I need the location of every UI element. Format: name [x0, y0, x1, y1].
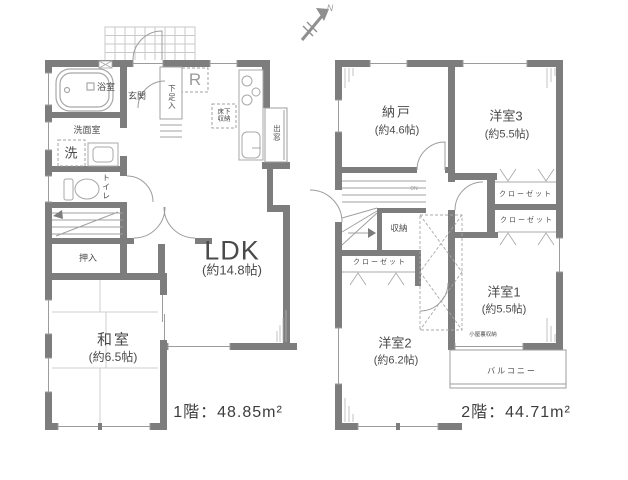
room-label-toilet: トイレ: [101, 174, 110, 201]
closet-label-yoshitsu1: クローゼット: [500, 217, 554, 225]
compass-north-label: N: [327, 3, 334, 13]
stairs-floor1: [52, 210, 123, 236]
closet-label-yoshitsu2: クローゼット: [353, 259, 407, 267]
room-label-storage: 収納: [390, 224, 407, 234]
room-label-shoe-cabinet: 下足入: [167, 84, 176, 110]
room-label-yoshitsu1: 洋室1: [487, 286, 520, 301]
room-label-refrigerator: R: [189, 70, 201, 90]
room-size-nando: (約4.6帖): [375, 125, 420, 138]
room-label-yoshitsu2: 洋室2: [378, 337, 411, 352]
closet-label-yoshitsu3: クローゼット: [499, 191, 553, 199]
room-label-nando: 納戸: [382, 106, 412, 121]
porch-grid: [105, 27, 195, 61]
floor1-area-label: 1階：48.85m²: [173, 404, 283, 422]
compass-icon: [302, 8, 329, 40]
vanity-sink: [88, 143, 118, 166]
room-label-bay-window: 出窓: [272, 125, 281, 142]
room-label-floor-storage: 床下 収納: [218, 109, 231, 124]
balcony-label: バルコニー: [487, 366, 537, 375]
toilet-fixture: [64, 179, 99, 200]
room-size-yoshitsu1: (約5.5帖): [482, 304, 527, 317]
bath-fan-icon: [99, 61, 112, 68]
room-label-washroom: 洗面室: [73, 125, 100, 135]
room-label-entrance: 玄関: [128, 91, 146, 101]
room-label-washer: 洗: [64, 147, 77, 162]
attic-storage-label: 小屋裏収納: [469, 332, 497, 338]
room-size-ldk: (約14.8帖): [202, 264, 262, 279]
room-size-yoshitsu3: (約5.5帖): [485, 129, 530, 142]
floor2-area-label: 2階：44.71m²: [461, 404, 571, 422]
floorplan-page: N 浴室 洗面室 洗 トイレ 玄関 下足入 R 床下 収納 出窓 押入 LDK …: [0, 0, 628, 480]
room-label-oshiire: 押入: [79, 253, 97, 263]
kitchen-counter: [239, 70, 263, 160]
room-label-yoshitsu3: 洋室3: [489, 110, 522, 125]
room-label-washitsu: 和室: [97, 331, 131, 348]
room-size-yoshitsu2: (約6.2帖): [374, 355, 419, 368]
stairs-down-label: DN: [410, 187, 417, 193]
room-label-bath: 浴室: [97, 82, 115, 92]
room-size-washitsu: (約6.5帖): [89, 351, 138, 365]
